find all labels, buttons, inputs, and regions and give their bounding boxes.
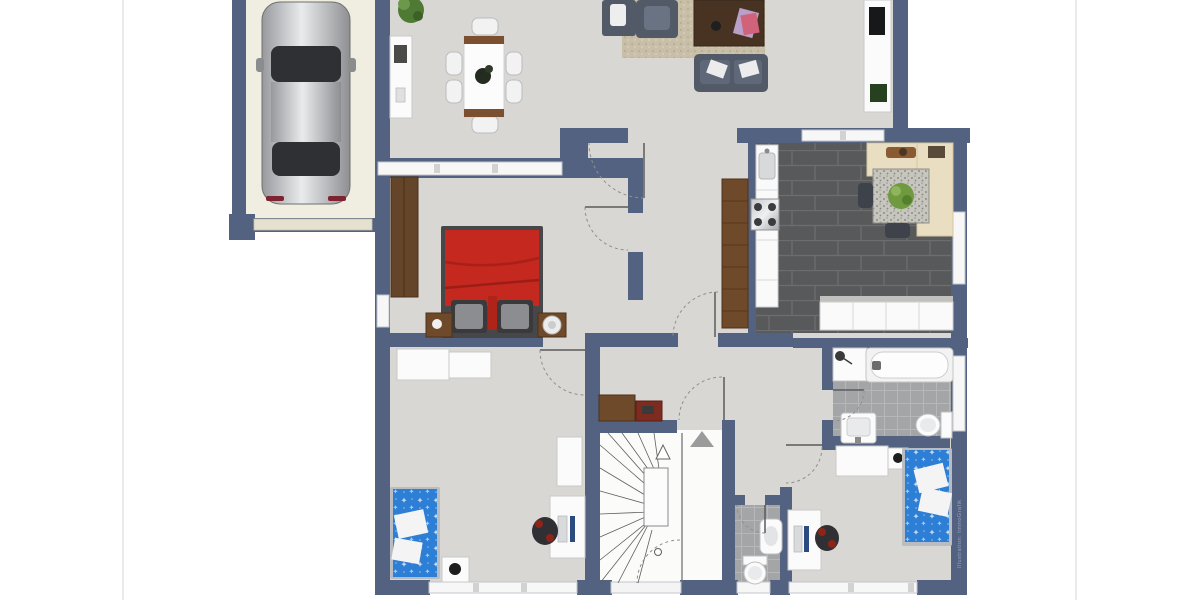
island-plant-leaf2: [902, 195, 912, 205]
stove-burner: [754, 203, 762, 211]
wall-mid-right: [585, 333, 678, 347]
bath-toilet-seat: [920, 418, 936, 432]
kids2-laptop-screen: [804, 526, 809, 552]
dining-chair-right2: [506, 80, 522, 103]
car-windshield: [271, 46, 341, 82]
dining-chair-left2: [446, 80, 462, 103]
dining-chair-bottom: [472, 116, 498, 133]
coffee-table-magazine2: [740, 13, 759, 35]
dining-table-cap-bottom: [464, 109, 504, 117]
car-mirror-right: [348, 58, 356, 72]
kids1-laptop-keys: [558, 516, 567, 542]
stove: [751, 199, 779, 230]
window-post: [840, 131, 846, 140]
wall-bottom-e: [917, 580, 967, 595]
wall-kids1-right: [585, 347, 600, 583]
kids2-chair-accent: [818, 528, 826, 536]
hall-shelf-wood: [599, 395, 635, 421]
window-kids1-bottom: [429, 582, 577, 593]
kitchen-sink: [759, 153, 775, 179]
wall-corridor-bottom-b: [722, 420, 735, 433]
window-bath-right: [953, 356, 965, 431]
window-bedroom-left: [377, 295, 389, 327]
front-door-band: [611, 582, 681, 593]
kids2-chair-accent: [828, 540, 836, 548]
bath-sink-basin: [847, 418, 870, 436]
dining-table-decor2: [485, 65, 493, 73]
wall-wc-top-a: [735, 495, 745, 505]
wc-toilet-seat: [748, 566, 762, 580]
kids1-dresser-b: [449, 352, 491, 378]
wall-bottom-a: [375, 580, 430, 595]
island-plant-leaf: [891, 186, 901, 196]
wall-bottom-b: [577, 580, 612, 595]
bed-red-runner: [488, 296, 497, 330]
wc-sink-basin: [764, 526, 778, 546]
bed-pillow-right-inner: [501, 304, 529, 329]
kids2-laptop-keys: [794, 526, 802, 552]
window-post: [908, 583, 914, 592]
stove-burner: [768, 203, 776, 211]
kitchen-corner-item: [928, 146, 945, 158]
kids1-laptop-screen: [570, 516, 575, 542]
bed-duvet-red: [445, 230, 539, 306]
page-guide-line-left: [122, 0, 124, 600]
kitchen-faucet: [765, 149, 770, 154]
outside-patch-top-right: [908, 0, 951, 130]
stairs-newel: [655, 549, 662, 556]
car-mirror-left: [256, 58, 264, 72]
wall-kitchen-bottom: [735, 333, 793, 347]
window-post: [473, 583, 479, 592]
kitchen-chair-left: [858, 183, 873, 208]
page-guide-line-right: [1075, 0, 1077, 600]
tv-cabinet-decor: [870, 84, 887, 102]
tv: [869, 7, 885, 35]
stove-burner: [754, 218, 762, 226]
wall-living-stub-horiz: [560, 128, 628, 143]
island-plant: [888, 183, 914, 209]
wall-bottom-d: [770, 580, 790, 595]
car-taillight-right: [328, 196, 346, 201]
nightstand-left-deco: [432, 319, 442, 329]
wall-bottom-c: [680, 580, 738, 595]
wall-bath-left-a: [822, 338, 833, 390]
wall-bedroom-right-a: [628, 158, 643, 213]
kids2-nightstand-item: [893, 453, 903, 463]
hall-shelf-detail: [642, 406, 654, 414]
bathtub-faucet: [872, 361, 881, 370]
sofa-chaise-pillow: [610, 4, 626, 26]
kids2-chair: [815, 525, 839, 551]
dining-chair-right1: [506, 52, 522, 75]
dining-chair-left1: [446, 52, 462, 75]
window-post: [434, 164, 440, 173]
bed-pillow-left-inner: [455, 304, 483, 329]
wall-corridor-bottom-a: [585, 420, 677, 433]
bath-sink-tap: [855, 437, 861, 443]
wall-bedroom-right-b: [628, 252, 643, 300]
car-taillight-left: [266, 196, 284, 201]
floor-plan-image: Illustration: ImmoGrafik: [0, 0, 1200, 600]
wall-garage-post: [229, 214, 255, 240]
wall-hall-right: [722, 433, 735, 583]
floor-plan-page: Illustration: ImmoGrafik: [0, 0, 1200, 600]
kids1-nightstand-item: [449, 563, 461, 575]
window-post: [848, 583, 854, 592]
wall-kitchen-left: [748, 143, 756, 333]
window-bedroom-top: [378, 162, 562, 175]
sideboard-detail: [394, 45, 407, 63]
wall-wc-top-b: [765, 495, 780, 505]
car-rear-window: [272, 142, 340, 176]
wall-garage-left: [232, 0, 246, 240]
coffee-table-item: [711, 21, 721, 31]
kids1-tall-cabinet: [557, 437, 582, 486]
wall-mid-block: [718, 333, 735, 347]
dining-table-cap-top: [464, 36, 504, 44]
dining-chair-top: [472, 18, 498, 35]
bathtub-inner: [871, 352, 948, 378]
cutting-board-item: [899, 148, 907, 156]
kids2-wardrobe: [836, 446, 888, 476]
sideboard-detail2: [396, 88, 405, 102]
watermark-text: Illustration: ImmoGrafik: [957, 499, 963, 568]
window-post: [521, 583, 527, 592]
nightstand-lamp-inner: [548, 321, 556, 329]
wall-living-right: [893, 0, 908, 143]
garage-door-band: [254, 219, 372, 230]
wall-bath-left-b: [822, 420, 833, 450]
kids1-chair: [532, 517, 558, 545]
plant-dining-leaf2: [413, 11, 423, 21]
kids1-chair-accent: [546, 534, 554, 542]
kitchen-chair-bottom: [885, 223, 910, 238]
armchair-cushion: [644, 6, 670, 30]
car-roof: [271, 82, 341, 142]
stairs-landing: [644, 468, 668, 526]
stove-burner: [768, 218, 776, 226]
kids1-chair-accent: [535, 520, 543, 528]
bath-toilet-tank: [941, 412, 952, 438]
window-post: [492, 164, 498, 173]
wall-bath-top: [793, 338, 968, 348]
kids1-dresser-a: [397, 349, 449, 380]
window-kitchen-right: [953, 212, 965, 284]
